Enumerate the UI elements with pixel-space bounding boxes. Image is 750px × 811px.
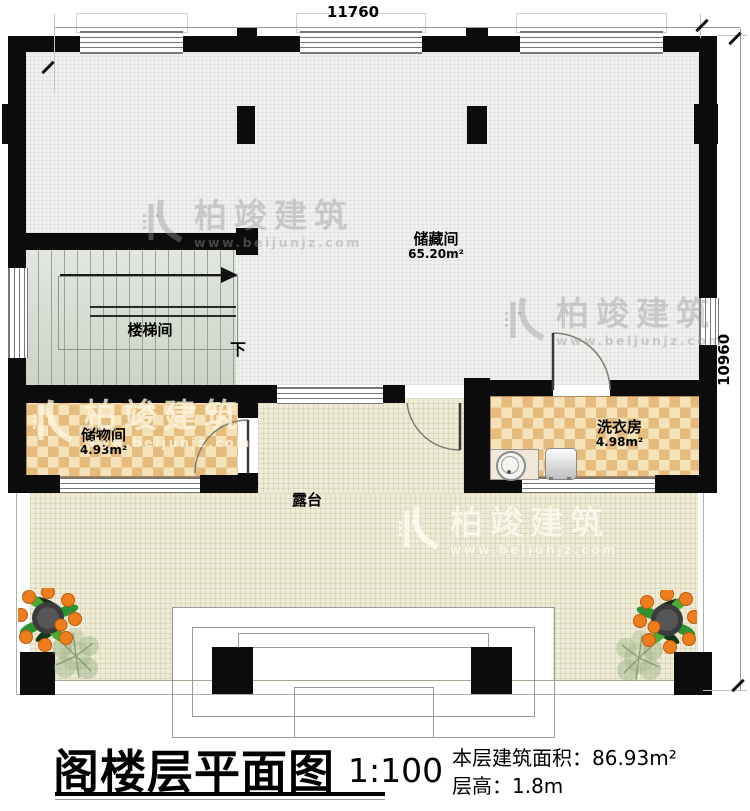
stair-down-label: 下 — [230, 336, 246, 360]
floor-height-row: 层高：1.8m — [452, 772, 677, 800]
window — [80, 31, 183, 54]
floor-height-value: 1.8m — [512, 774, 563, 798]
dimension-line-top — [54, 27, 740, 28]
window — [60, 477, 200, 493]
wall-segment — [422, 36, 520, 52]
door-opening — [238, 418, 258, 473]
interior-column — [467, 106, 487, 144]
wall-pilaster — [694, 104, 718, 144]
terrace-floor-strip — [258, 398, 464, 493]
room-name: 储物间 — [56, 427, 151, 444]
wall-pier — [236, 228, 258, 255]
window — [522, 477, 655, 493]
floor-plan-canvas: 11760 10960 — [0, 0, 750, 811]
window — [520, 31, 663, 54]
stair-direction-line — [60, 274, 222, 276]
interior-column — [237, 106, 255, 144]
step-outline — [238, 633, 489, 648]
room-label-stairwell: 楼梯间 — [108, 322, 192, 339]
room-name: 洗衣房 — [572, 419, 667, 436]
wall-segment — [8, 475, 60, 493]
plan-scale: 1:100 — [348, 751, 443, 790]
window — [300, 31, 422, 54]
room-label-laundry: 洗衣房 4.98m² — [572, 419, 667, 450]
floor-area-value: 86.93m² — [592, 746, 677, 770]
washer-foot — [567, 477, 571, 480]
room-area: 65.20m² — [386, 248, 486, 262]
room-label-storage: 储藏间 65.20m² — [386, 231, 486, 262]
floor-height-label: 层高： — [452, 774, 512, 798]
room-name: 储藏间 — [386, 231, 486, 248]
dimension-tick — [695, 19, 708, 32]
title-underline — [55, 792, 385, 796]
step-outline — [294, 687, 434, 738]
window-sill — [76, 13, 188, 33]
wall-pilaster — [2, 104, 26, 144]
dimension-right: 10960 — [715, 338, 731, 386]
floor-area-row: 本层建筑面积：86.93m² — [452, 744, 677, 772]
plant-icon — [592, 590, 697, 708]
extension-line — [703, 690, 747, 691]
window — [277, 387, 383, 404]
room-name: 露台 — [272, 492, 342, 509]
column — [471, 647, 512, 694]
room-label-closet: 储物间 4.93m² — [56, 427, 151, 458]
dimension-line-right — [740, 28, 741, 690]
sink-drain — [507, 470, 511, 474]
title-underline-thin — [55, 799, 385, 800]
wall-segment — [699, 36, 717, 298]
wall-segment — [8, 385, 238, 403]
washing-machine-icon — [545, 448, 577, 480]
room-area: 4.98m² — [572, 436, 667, 450]
plant-icon — [18, 588, 123, 706]
room-area: 4.93m² — [56, 444, 151, 458]
wall-segment — [610, 380, 699, 396]
wall-segment — [655, 475, 717, 493]
stair-direction-arrow-icon — [221, 267, 238, 283]
washer-foot — [549, 477, 553, 480]
stair-wall — [8, 233, 258, 250]
wall-pier — [237, 28, 257, 37]
window — [8, 268, 28, 358]
wall-segment — [183, 36, 300, 52]
wall-segment — [490, 380, 553, 396]
wall-segment — [200, 475, 258, 493]
wall-segment — [8, 358, 26, 493]
wall-segment — [383, 385, 405, 403]
room-label-terrace: 露台 — [272, 492, 342, 509]
window-sill — [516, 13, 667, 33]
wall-pier — [466, 28, 488, 37]
plan-info: 本层建筑面积：86.93m² 层高：1.8m — [452, 744, 677, 800]
wall-segment — [258, 385, 277, 403]
floor-area-label: 本层建筑面积： — [452, 746, 592, 770]
dimension-top: 11760 — [305, 3, 401, 21]
room-name: 楼梯间 — [108, 322, 192, 339]
extension-line — [717, 35, 747, 36]
extension-line — [54, 14, 55, 92]
stair-landing-rail — [90, 306, 236, 317]
column — [212, 647, 253, 694]
